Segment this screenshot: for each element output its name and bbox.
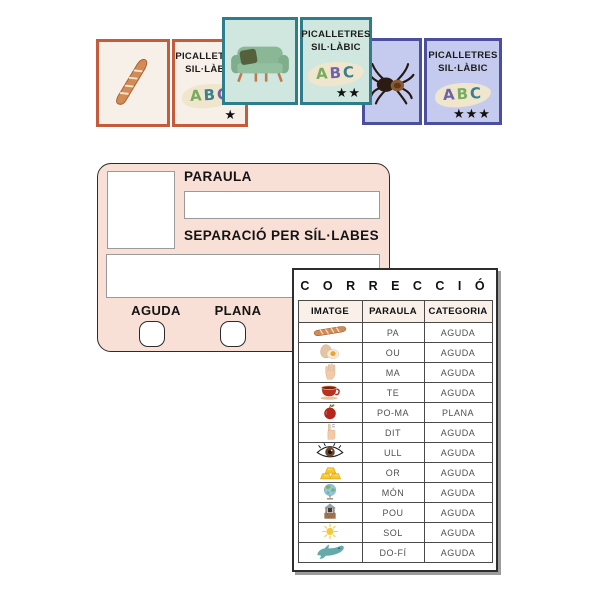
categoria-cell: AGUDA <box>424 323 492 343</box>
paraula-cell: PA <box>362 323 424 343</box>
sun-icon <box>312 523 348 540</box>
paraula-cell: DO-FÍ <box>362 543 424 563</box>
imatge-cell <box>298 503 362 523</box>
plana-checkbox[interactable] <box>220 321 246 347</box>
card-title: PICALLETRESSIL·LÀBIC <box>301 29 370 55</box>
table-row: MAAGUDA <box>298 363 492 383</box>
flashcard-pair-2: PICALLETRESSIL·LÀBIC ABC ★★ <box>222 17 372 105</box>
tarantula-icon <box>367 53 417 111</box>
paraula-cell: PO-MA <box>362 403 424 423</box>
abc-letter-a: A <box>442 85 457 104</box>
imatge-cell <box>298 423 362 443</box>
separacio-label: SEPARACIÓ PER SÍL·LABES <box>184 228 379 243</box>
paraula-cell: TE <box>362 383 424 403</box>
categoria-cell: AGUDA <box>424 463 492 483</box>
paraula-cell: DIT <box>362 423 424 443</box>
correction-card: C O R R E C C I Ó IMATGE PARAULA CATEGOR… <box>292 268 498 572</box>
dolphin-icon <box>312 543 348 560</box>
aguda-label: AGUDA <box>131 303 181 318</box>
categoria-cell: AGUDA <box>424 483 492 503</box>
flashcard-image-baguette[interactable] <box>96 39 170 127</box>
flashcard-image-sofa[interactable] <box>222 17 298 105</box>
categoria-cell: AGUDA <box>424 443 492 463</box>
imatge-cell <box>298 483 362 503</box>
eye-icon <box>312 443 348 460</box>
difficulty-stars: ★★ <box>336 86 361 101</box>
correction-table: IMATGE PARAULA CATEGORIA PAAGUDAOUAGUDAM… <box>298 300 493 563</box>
aguda-checkbox[interactable] <box>139 321 165 347</box>
paraula-label: PARAULA <box>184 169 252 184</box>
imatge-cell <box>298 383 362 403</box>
teacup-icon <box>312 383 348 400</box>
abc-splash: ABC <box>434 81 491 108</box>
abc-letter-b: B <box>203 85 217 104</box>
baguette-icon <box>104 46 162 120</box>
categoria-cell: AGUDA <box>424 363 492 383</box>
hand-icon <box>312 363 348 380</box>
paraula-cell: MÓN <box>362 483 424 503</box>
table-row: OUAGUDA <box>298 343 492 363</box>
categoria-cell: AGUDA <box>424 343 492 363</box>
categoria-cell: AGUDA <box>424 523 492 543</box>
table-row: DITAGUDA <box>298 423 492 443</box>
paraula-cell: ULL <box>362 443 424 463</box>
table-row: PO-MAPLANA <box>298 403 492 423</box>
apple-icon <box>312 403 348 420</box>
categoria-cell: PLANA <box>424 403 492 423</box>
col-header-paraula: PARAULA <box>362 301 424 323</box>
categoria-cell: AGUDA <box>424 503 492 523</box>
difficulty-stars: ★★★ <box>453 107 491 122</box>
correction-table-body: PAAGUDAOUAGUDAMAAGUDATEAGUDAPO-MAPLANADI… <box>298 323 492 563</box>
worksheet-page: PICALLETRESSIL·LÀBIC ABC ★ PICALLETRESSI… <box>0 0 600 600</box>
imatge-cell <box>298 543 362 563</box>
abc-letter-c: C <box>342 63 356 82</box>
imatge-cell <box>298 443 362 463</box>
paraula-cell: OR <box>362 463 424 483</box>
imatge-cell <box>298 403 362 423</box>
categoria-cell: AGUDA <box>424 383 492 403</box>
finger-icon <box>312 423 348 440</box>
categoria-cell: AGUDA <box>424 423 492 443</box>
table-row: DO-FÍAGUDA <box>298 543 492 563</box>
flashcard-pair-3: PICALLETRESSIL·LÀBIC ABC ★★★ <box>362 38 502 125</box>
difficulty-stars: ★ <box>224 108 237 123</box>
imatge-cell <box>298 463 362 483</box>
imatge-cell <box>298 523 362 543</box>
flashcard-title-2[interactable]: PICALLETRESSIL·LÀBIC ABC ★★ <box>300 17 372 105</box>
col-header-imatge: IMATGE <box>298 301 362 323</box>
imatge-cell <box>298 363 362 383</box>
paraula-cell: MA <box>362 363 424 383</box>
abc-letter-b: B <box>456 84 470 103</box>
globe-icon <box>312 483 348 500</box>
imatge-cell <box>298 323 362 343</box>
card-title: PICALLETRESSIL·LÀBIC <box>428 50 497 76</box>
paraula-cell: OU <box>362 343 424 363</box>
abc-letter-b: B <box>329 63 343 82</box>
plana-label: PLANA <box>213 303 263 318</box>
paraula-input[interactable] <box>184 191 380 219</box>
imatge-cell <box>298 343 362 363</box>
gold-icon <box>312 463 348 480</box>
categoria-cell: AGUDA <box>424 543 492 563</box>
table-row: PAAGUDA <box>298 323 492 343</box>
flashcard-title-3[interactable]: PICALLETRESSIL·LÀBIC ABC ★★★ <box>424 38 502 125</box>
paraula-cell: SOL <box>362 523 424 543</box>
paraula-cell: POU <box>362 503 424 523</box>
table-row: ORAGUDA <box>298 463 492 483</box>
table-row: ULLAGUDA <box>298 443 492 463</box>
sofa-icon <box>227 38 293 84</box>
table-row: POUAGUDA <box>298 503 492 523</box>
table-row: MÓNAGUDA <box>298 483 492 503</box>
abc-letter-a: A <box>315 64 330 83</box>
correction-title: C O R R E C C I Ó <box>294 279 496 293</box>
image-placeholder-box[interactable] <box>107 171 175 249</box>
baguette-icon <box>312 323 348 340</box>
eggs-icon <box>312 343 348 360</box>
table-header-row: IMATGE PARAULA CATEGORIA <box>298 301 492 323</box>
table-row: SOLAGUDA <box>298 523 492 543</box>
table-row: TEAGUDA <box>298 383 492 403</box>
well-icon <box>312 503 348 520</box>
abc-letter-a: A <box>189 86 204 105</box>
abc-splash: ABC <box>307 60 364 87</box>
abc-letter-c: C <box>469 84 483 103</box>
col-header-categoria: CATEGORIA <box>424 301 492 323</box>
